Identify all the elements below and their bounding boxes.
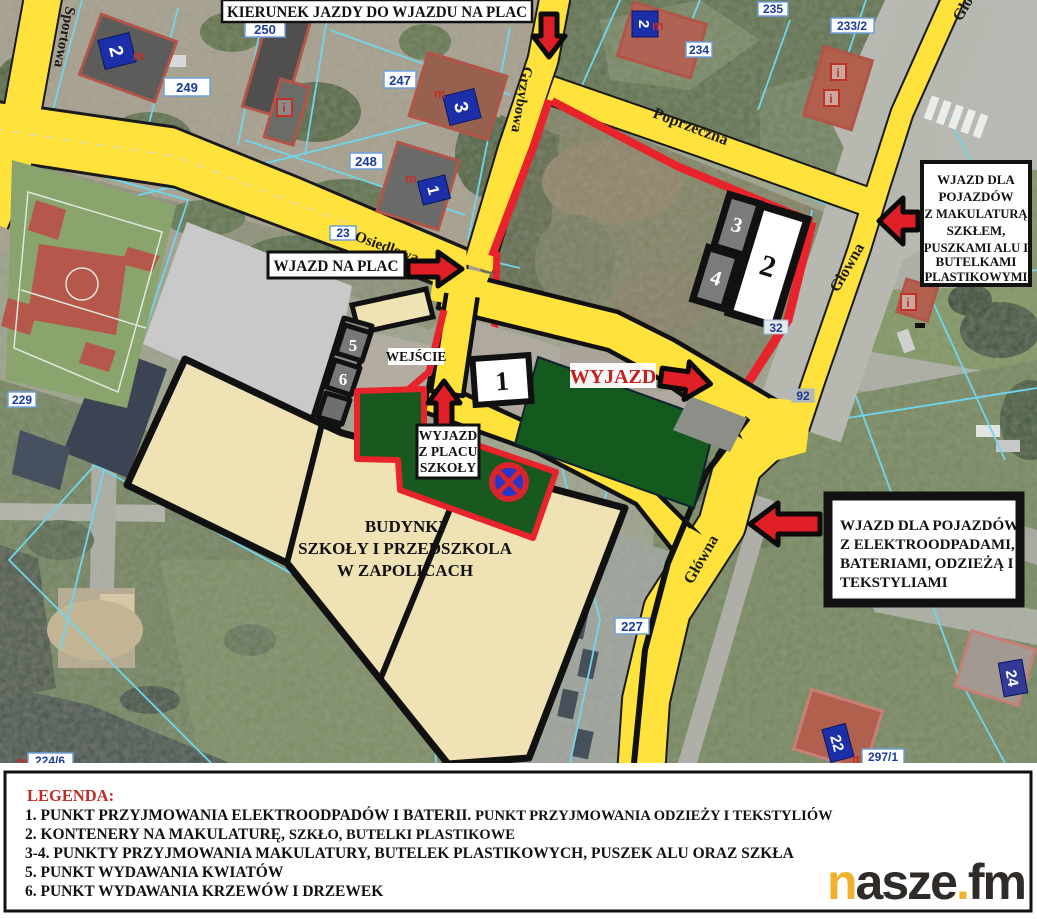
svg-text:227: 227: [621, 619, 643, 634]
svg-text:i: i: [829, 92, 832, 106]
svg-text:250: 250: [254, 22, 276, 37]
svg-text:1: 1: [494, 366, 510, 397]
svg-text:TEKSTYLIAMI: TEKSTYLIAMI: [840, 575, 948, 591]
svg-text:m: m: [652, 18, 664, 33]
svg-text:m: m: [405, 171, 417, 186]
svg-text:WYJAZD: WYJAZD: [570, 366, 657, 388]
svg-text:SZKOŁY I PRZEDSZKOLA: SZKOŁY I PRZEDSZKOLA: [298, 539, 513, 558]
svg-text:PLASTIKOWYMI: PLASTIKOWYMI: [925, 270, 1028, 284]
svg-text:229: 229: [12, 393, 32, 407]
svg-text:WEJŚCIE: WEJŚCIE: [386, 349, 447, 364]
svg-text:297/1: 297/1: [868, 750, 898, 764]
svg-text:m: m: [133, 48, 145, 63]
svg-text:SZKŁEM,: SZKŁEM,: [947, 223, 1006, 238]
svg-text:92: 92: [796, 389, 810, 403]
svg-text:6: 6: [339, 370, 348, 389]
svg-text:WYJAZD: WYJAZD: [419, 428, 478, 443]
svg-text:SZKOŁY: SZKOŁY: [420, 460, 477, 475]
svg-text:BUDYNKI: BUDYNKI: [365, 517, 446, 536]
svg-text:POJAZDÓW: POJAZDÓW: [938, 189, 1013, 204]
svg-text:Z MAKULATURĄ: Z MAKULATURĄ: [925, 207, 1028, 221]
svg-text:LEGENDA:: LEGENDA:: [27, 786, 114, 805]
svg-text:WJAZD DLA: WJAZD DLA: [937, 172, 1015, 187]
svg-text:3-4. PUNKTY PRZYJMOWANIA MAKUL: 3-4. PUNKTY PRZYJMOWANIA MAKULATURY, BUT…: [25, 845, 795, 862]
svg-text:m: m: [434, 86, 446, 101]
svg-text:PUSZKAMI ALU I: PUSZKAMI ALU I: [924, 241, 1028, 255]
svg-text:32: 32: [769, 321, 783, 335]
svg-text:W ZAPOLICACH: W ZAPOLICACH: [337, 561, 473, 580]
svg-text:235: 235: [763, 2, 783, 16]
svg-text:i: i: [906, 296, 909, 310]
svg-text:nasze.fm: nasze.fm: [827, 854, 1025, 910]
svg-text:2. KONTENERY NA MAKULATURĘ, SZ: 2. KONTENERY NA MAKULATURĘ, SZKŁO, BUTEL…: [25, 826, 515, 843]
svg-text:234: 234: [689, 43, 709, 57]
svg-text:BATERIAMI, ODZIEŻĄ I: BATERIAMI, ODZIEŻĄ I: [840, 555, 1014, 572]
svg-text:BUTELKAMI: BUTELKAMI: [936, 254, 1017, 269]
svg-text:1. PUNKT PRZYJMOWANIA ELEKTROO: 1. PUNKT PRZYJMOWANIA ELEKTROODPADÓW I B…: [25, 807, 833, 824]
svg-text:Z ELEKTROODPADAMI,: Z ELEKTROODPADAMI,: [840, 537, 1015, 553]
svg-text:i: i: [836, 66, 839, 80]
svg-text:Z PLACU: Z PLACU: [419, 444, 478, 459]
svg-text:KIERUNEK JAZDY DO WJAZDU NA PL: KIERUNEK JAZDY DO WJAZDU NA PLAC: [227, 4, 527, 21]
svg-text:6. PUNKT WYDAWANIA KRZEWÓW I D: 6. PUNKT WYDAWANIA KRZEWÓW I DRZEWEK: [25, 883, 383, 900]
svg-text:5: 5: [349, 336, 358, 355]
svg-text:247: 247: [389, 73, 411, 88]
svg-text:248: 248: [355, 154, 377, 169]
svg-text:5. PUNKT WYDAWANIA KWIATÓW: 5. PUNKT WYDAWANIA KWIATÓW: [25, 864, 284, 881]
svg-text:WJAZD NA PLAC: WJAZD NA PLAC: [274, 258, 399, 275]
svg-text:23: 23: [336, 226, 350, 240]
svg-text:249: 249: [176, 80, 198, 95]
svg-text:2: 2: [635, 20, 652, 28]
svg-text:WJAZD DLA POJAZDÓW: WJAZD DLA POJAZDÓW: [840, 517, 1019, 534]
svg-text:233/2: 233/2: [837, 19, 867, 33]
svg-text:i: i: [282, 101, 285, 115]
